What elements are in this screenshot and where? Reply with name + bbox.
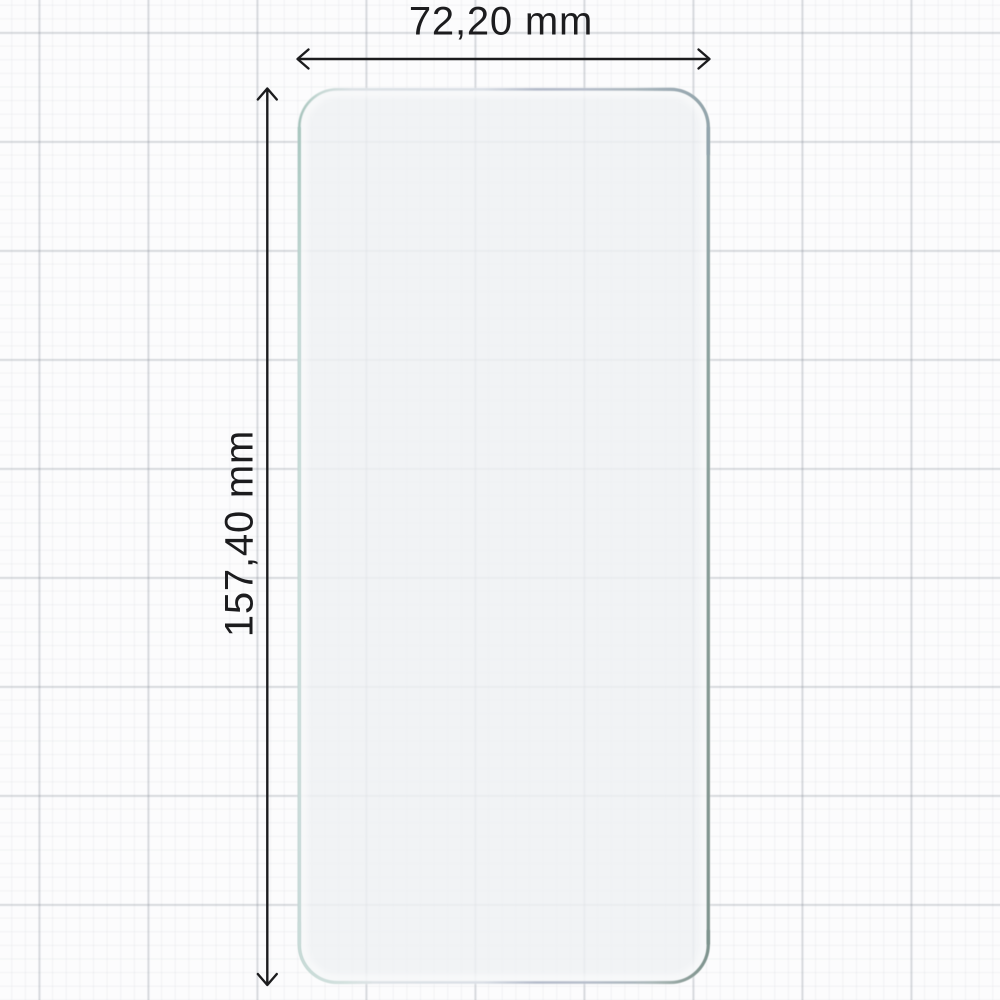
svg-text:72,20 mm: 72,20 mm [409, 0, 593, 44]
svg-text:157,40 mm: 157,40 mm [218, 430, 262, 637]
